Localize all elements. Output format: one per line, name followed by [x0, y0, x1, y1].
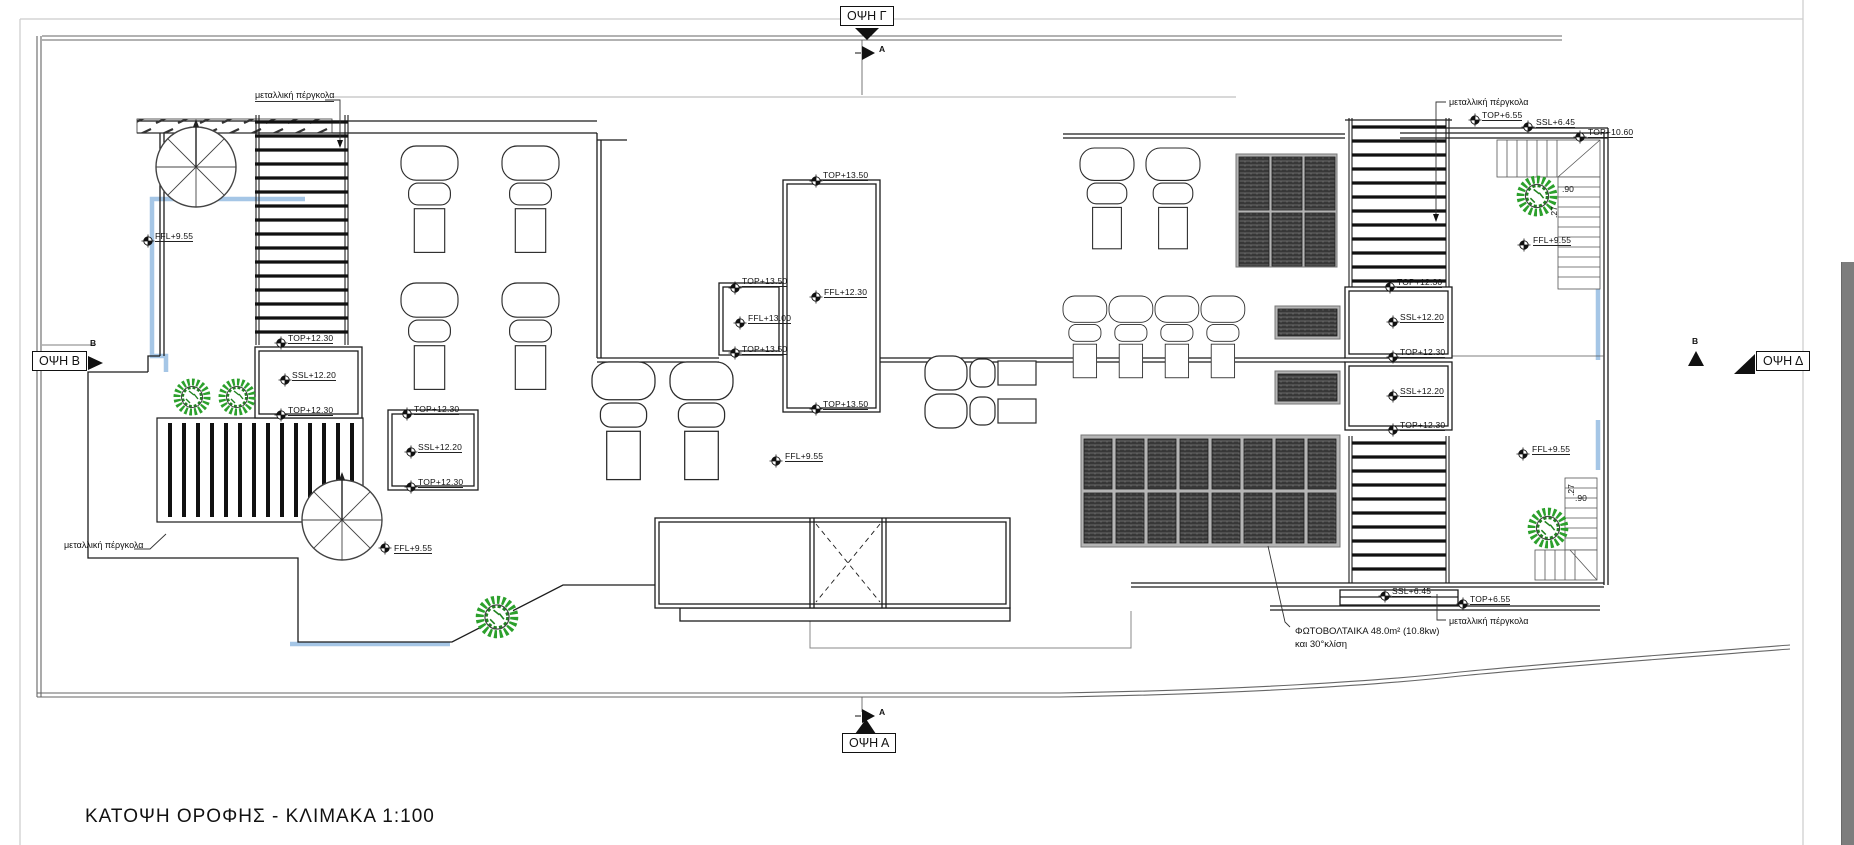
- floor-plan-drawing: [0, 0, 1854, 845]
- level-label: TOP+13.50: [823, 170, 868, 181]
- level-label: TOP+12.30: [1397, 277, 1442, 288]
- level-label: SSL+12.20: [292, 370, 336, 381]
- terrace-step-line: [810, 611, 1131, 648]
- level-label: SSL+12.20: [1400, 312, 1444, 323]
- level-label: TOP+12.30: [288, 405, 333, 416]
- level-label: TOP+12.30: [288, 333, 333, 344]
- dim-90-top-right: .90: [1562, 184, 1574, 194]
- level-label: SSL+6.45: [1536, 117, 1575, 128]
- level-label: TOP+10.60: [1588, 127, 1633, 138]
- level-label: TOP+12.30: [414, 404, 459, 415]
- view-label-right: ΟΨΗ Δ: [1756, 351, 1810, 371]
- level-label: FFL+9.55: [1533, 235, 1571, 246]
- level-label: TOP+6.55: [1470, 594, 1510, 605]
- level-label: FFL+9.55: [155, 231, 193, 242]
- level-label: FFL+12.30: [824, 287, 867, 298]
- level-label: TOP+12.30: [418, 477, 463, 488]
- scrollbar[interactable]: [1841, 262, 1854, 845]
- level-label: FFL+13.00: [748, 313, 791, 324]
- level-label: TOP+6.55: [1482, 110, 1522, 121]
- level-label: TOP+12.30: [1400, 347, 1445, 358]
- section-letter-a-bottom: A: [879, 707, 885, 717]
- central-block: [655, 518, 1010, 608]
- view-label-bottom: ΟΨΗ Α: [842, 733, 896, 753]
- view-label-left: ΟΨΗ Β: [32, 351, 87, 371]
- drawing-sheet: ΟΨΗ Γ ΟΨΗ Α ΟΨΗ Β ΟΨΗ Δ A A B B FFL+9.55…: [0, 0, 1854, 845]
- section-letter-b-right: B: [1692, 336, 1698, 346]
- photovoltaics-label-line2: και 30°κλίση: [1295, 639, 1347, 650]
- level-label: TOP+13.50: [742, 276, 787, 287]
- level-label: SSL+6.45: [1392, 586, 1431, 597]
- drawing-title: ΚΑΤΟΨΗ ΟΡΟΦΗΣ - ΚΛΙΜΑΚΑ 1:100: [85, 806, 435, 828]
- level-label: FFL+9.55: [394, 543, 432, 554]
- section-letter-a-top: A: [879, 44, 885, 54]
- level-label: SSL+12.20: [1400, 386, 1444, 397]
- view-label-top: ΟΨΗ Γ: [840, 6, 894, 26]
- pergola-label-bottom-right: μεταλλική πέργκολα: [1449, 616, 1528, 627]
- pergola-label-top-left: μεταλλική πέργκολα: [255, 90, 334, 102]
- level-label: TOP+13.50: [823, 399, 868, 410]
- level-label: FFL+9.55: [1532, 444, 1570, 455]
- level-label: SSL+12.20: [418, 442, 462, 453]
- dim-27-top-right: .27: [1549, 206, 1559, 218]
- level-label: FFL+9.55: [785, 451, 823, 462]
- section-letter-b-left: B: [90, 338, 96, 348]
- photovoltaics-label-line1: ΦΩΤΟΒΟΛΤΑΙΚΑ 48.0m² (10.8kw): [1295, 626, 1439, 637]
- pergola-label-top-right: μεταλλική πέργκολα: [1449, 97, 1528, 108]
- level-label: TOP+13.50: [742, 344, 787, 355]
- pergola-label-lower-left: μεταλλική πέργκολα: [64, 540, 143, 551]
- dim-90-bottom-right: .90: [1575, 493, 1587, 503]
- level-label: TOP+12.30: [1400, 420, 1445, 431]
